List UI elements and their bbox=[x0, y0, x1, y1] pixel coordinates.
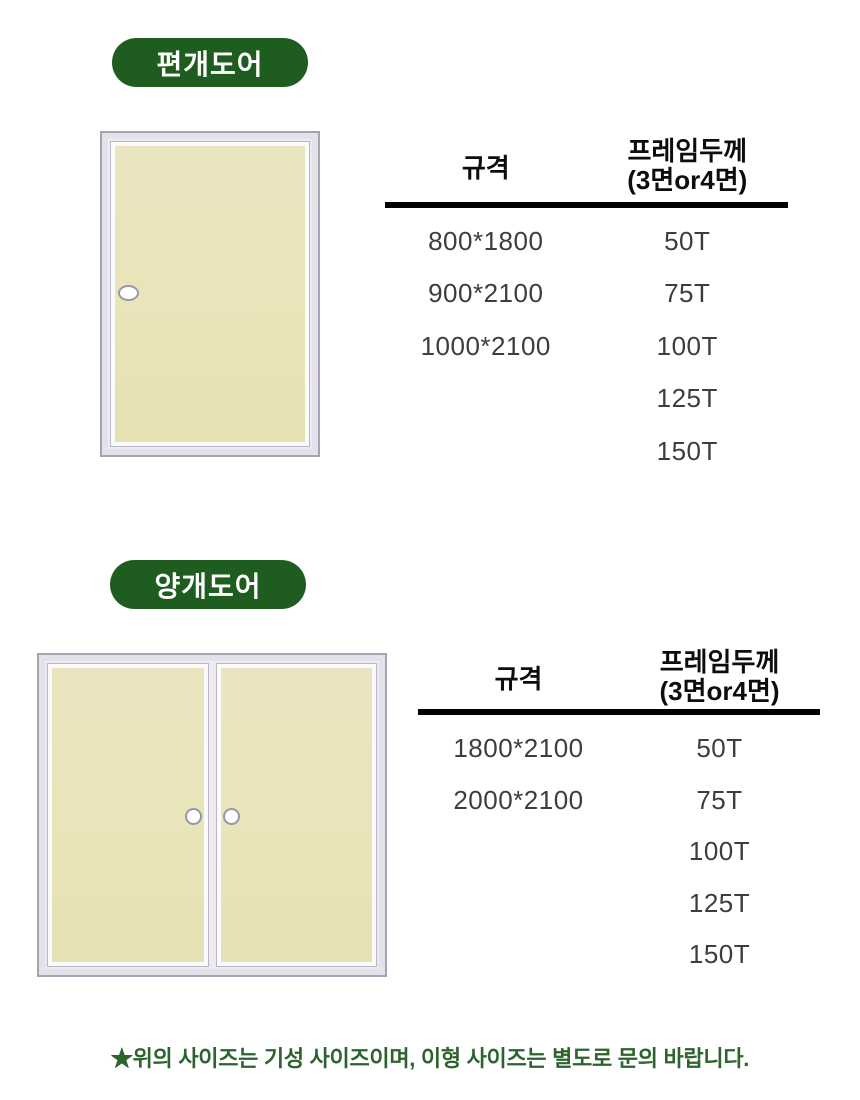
thickness-value: 100T bbox=[689, 836, 750, 867]
column-header-size: 규격 bbox=[462, 148, 510, 185]
column-header-frame-thickness: 프레임두께 (3면or4면) bbox=[627, 137, 747, 195]
table-row: 1800*2100 50T bbox=[418, 723, 820, 775]
table-body: 800*1800 50T 900*2100 75T 1000*2100 100T… bbox=[385, 208, 788, 478]
double-door-left-handle-icon bbox=[185, 808, 202, 825]
thickness-value: 150T bbox=[657, 436, 718, 467]
table-header-row: 규격 프레임두께 (3면or4면) bbox=[385, 130, 788, 202]
column-header-size: 규격 bbox=[495, 659, 543, 696]
single-door-spec-table: 규격 프레임두께 (3면or4면) 800*1800 50T 900*2100 … bbox=[385, 130, 788, 478]
thickness-value: 125T bbox=[657, 383, 718, 414]
size-value: 2000*2100 bbox=[453, 785, 583, 816]
table-row: 800*1800 50T bbox=[385, 215, 788, 268]
thickness-value: 150T bbox=[689, 939, 750, 970]
double-door-right-panel bbox=[221, 668, 373, 962]
frame-thickness-label-line1: 프레임두께 bbox=[659, 648, 779, 677]
frame-thickness-label-line2: (3면or4면) bbox=[659, 677, 779, 706]
table-row: 150T bbox=[418, 929, 820, 981]
thickness-value: 50T bbox=[696, 733, 742, 764]
double-door-frame-inner bbox=[47, 663, 377, 967]
single-door-illustration bbox=[100, 131, 320, 457]
frame-thickness-label-line1: 프레임두께 bbox=[627, 137, 747, 166]
table-header-row: 규격 프레임두께 (3면or4면) bbox=[418, 645, 820, 709]
single-door-handle-icon bbox=[118, 285, 139, 301]
thickness-value: 50T bbox=[664, 226, 710, 257]
thickness-value: 100T bbox=[657, 331, 718, 362]
single-door-leaf bbox=[110, 141, 310, 447]
table-row: 125T bbox=[418, 878, 820, 930]
size-value: 800*1800 bbox=[428, 226, 543, 257]
table-row: 125T bbox=[385, 373, 788, 426]
door-spec-sheet: 편개도어 규격 프레임두께 (3면or4면) 800*1800 50T 900*… bbox=[0, 0, 860, 1100]
frame-thickness-label-line2: (3면or4면) bbox=[627, 166, 747, 195]
single-door-section-badge: 편개도어 bbox=[112, 38, 308, 87]
thickness-value: 125T bbox=[689, 888, 750, 919]
table-row: 2000*2100 75T bbox=[418, 775, 820, 827]
table-body: 1800*2100 50T 2000*2100 75T 100T 125T 15… bbox=[418, 715, 820, 981]
table-row: 150T bbox=[385, 425, 788, 478]
size-notice: ★위의 사이즈는 기성 사이즈이며, 이형 사이즈는 별도로 문의 바랍니다. bbox=[0, 1041, 860, 1073]
size-value: 1800*2100 bbox=[453, 733, 583, 764]
size-value: 1000*2100 bbox=[421, 331, 551, 362]
double-door-section-badge: 양개도어 bbox=[110, 560, 306, 609]
single-door-frame-inner bbox=[110, 141, 310, 447]
single-door-panel bbox=[115, 146, 305, 442]
double-door-right-handle-icon bbox=[223, 808, 240, 825]
double-door-illustration bbox=[37, 653, 387, 977]
double-door-spec-table: 규격 프레임두께 (3면or4면) 1800*2100 50T 2000*210… bbox=[418, 645, 820, 981]
table-row: 900*2100 75T bbox=[385, 268, 788, 321]
table-row: 100T bbox=[418, 826, 820, 878]
double-door-left-panel bbox=[52, 668, 204, 962]
table-row: 1000*2100 100T bbox=[385, 320, 788, 373]
column-header-frame-thickness: 프레임두께 (3면or4면) bbox=[659, 648, 779, 706]
size-value: 900*2100 bbox=[428, 278, 543, 309]
thickness-value: 75T bbox=[696, 785, 742, 816]
thickness-value: 75T bbox=[664, 278, 710, 309]
